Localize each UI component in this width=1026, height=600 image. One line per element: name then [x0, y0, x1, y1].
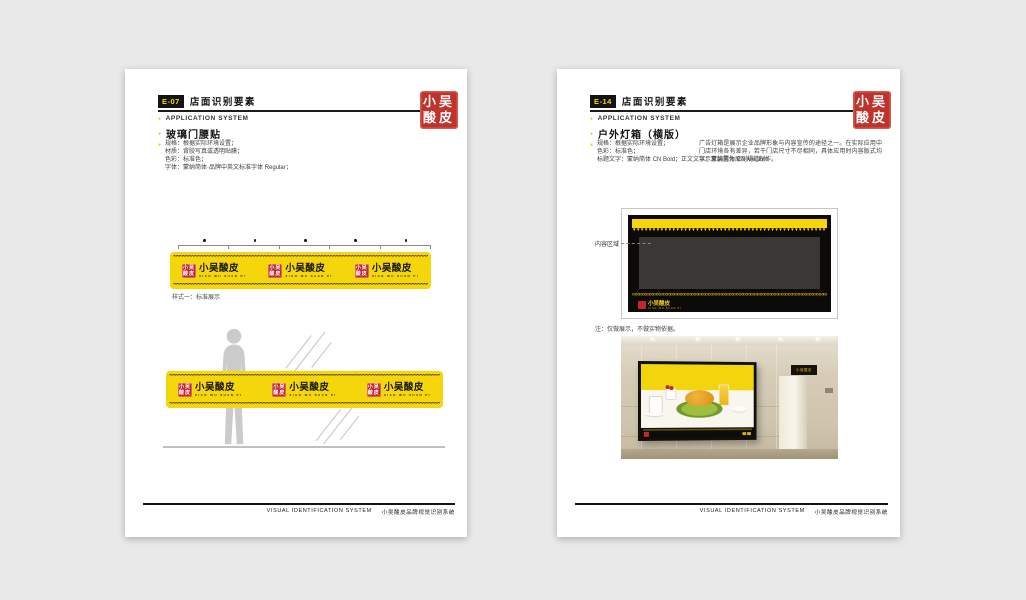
dessert-cup — [666, 388, 677, 400]
saucer — [646, 413, 664, 416]
footer-text-cn: 小吴酸皮品牌视觉识别系统 — [815, 508, 888, 516]
seal-row-bottom: 酸皮 — [182, 271, 196, 277]
banner-brand-text: 小吴酸皮 XIAO WU SUAN PI — [648, 301, 682, 310]
bullet-icon: ● — [590, 116, 594, 122]
spec-line: 规格：根据实际环境设置； — [165, 140, 292, 148]
ceiling-light-icon — [696, 338, 699, 340]
brand-name: 小吴酸皮 — [384, 383, 431, 393]
banner-brand-text: 小吴酸皮 XIAO WU SUAN PI — [195, 383, 242, 397]
ruler-tick — [329, 245, 330, 249]
header-rule — [158, 110, 435, 112]
footer-text-cn: 小吴酸皮品牌视觉识别系统 — [382, 508, 455, 516]
brand-name: 小吴酸皮 — [289, 383, 336, 393]
banner-seal-icon: 小吴 酸皮 — [268, 264, 282, 278]
ruler-tick — [430, 245, 431, 249]
brand-name-en: XIAO WU SUAN PI — [372, 274, 419, 278]
section-label-en: ● APPLICATION SYSTEM — [158, 115, 249, 122]
ceiling-light-icon — [651, 338, 654, 340]
banner-seal-icon: 小吴 酸皮 — [182, 264, 196, 278]
section-en-text: APPLICATION SYSTEM — [166, 115, 249, 122]
ad-mark — [742, 432, 746, 435]
ceiling-light-icon — [736, 338, 739, 340]
spec-line: 材质：背胶写真或透明贴膜； — [165, 148, 292, 156]
brand-name-en: XIAO WU SUAN PI — [285, 274, 332, 278]
brand-name: 小吴酸皮 — [195, 383, 242, 393]
ruler-dot — [304, 239, 307, 242]
seal-row-bottom: 酸皮 — [420, 110, 458, 126]
glass-door-sticker-banner: ~~~~~~~~~~~~~~~~~~~~~~~~~~~~~~~~~~~~~~~~… — [166, 371, 443, 408]
bullet-icon: ● — [590, 141, 593, 164]
lightbox-diagram: ▼▼▼▼▼▼▼▼▼▼▼▼▼▼▼▼▼▼▼▼▼▼▼▼▼▼▼▼▼▼▼▼▼▼▼▼▼▼▼▼… — [621, 208, 838, 319]
bullet-icon: ● — [158, 131, 162, 137]
seal-row-bottom: 酸皮 — [853, 110, 891, 126]
brand-name: 小吴酸皮 — [285, 264, 332, 274]
lightbox-yellow-band — [632, 219, 827, 228]
brand-name: 小吴酸皮 — [372, 264, 419, 274]
banner-logo: 小吴 酸皮 小吴酸皮 XIAO WU SUAN PI — [182, 264, 246, 278]
ruler-dot — [254, 239, 257, 242]
seal-row-bottom: 酸皮 — [355, 271, 369, 277]
footer-text: VISUAL IDENTIFICATION SYSTEM 小吴酸皮品牌视觉识别系… — [267, 508, 455, 516]
banner-brand-text: 小吴酸皮 XIAO WU SUAN PI — [285, 264, 332, 278]
brand-name-en: XIAO WU SUAN PI — [648, 307, 682, 310]
photo-doorway — [779, 376, 807, 450]
ground-line — [163, 446, 445, 448]
ruler-line — [178, 245, 430, 246]
footer-rule — [575, 503, 888, 505]
ceiling-light-icon — [779, 338, 782, 340]
banner-logo: 小吴 酸皮 小吴酸皮 XIAO WU SUAN PI — [367, 383, 431, 397]
bullet-icon: ● — [158, 116, 162, 122]
banner-seal-icon — [638, 301, 646, 309]
seal-row-top: 小吴 — [853, 94, 891, 110]
page-header: E-07 店面识别要素 — [158, 94, 256, 108]
chain-border-icon: ∞∞∞∞∞∞∞∞∞∞∞∞∞∞∞∞∞∞∞∞∞∞∞∞∞∞∞∞∞∞∞∞∞∞∞∞∞∞∞∞… — [632, 293, 827, 299]
ruler-dot — [203, 239, 206, 242]
item-title-text: 户外灯箱（横版） — [598, 126, 686, 141]
milk-cup — [649, 396, 663, 414]
ruler-tick — [380, 245, 381, 249]
header-rule — [590, 110, 867, 112]
wall-tile-line — [776, 345, 777, 449]
description-paragraph: 广告灯箱是展示企业品牌形象与内容宣传的途径之一。在实际应用中门店环境各有差异，若… — [699, 140, 882, 165]
spec-line: 字体：蒙纳简体·品牌中英文标准字体 Regular； — [165, 164, 292, 172]
banner-seal-icon — [644, 431, 649, 436]
item-title: ● 玻璃门腰贴 — [158, 126, 221, 141]
banner-logo: 小吴 酸皮 小吴酸皮 XIAO WU SUAN PI — [268, 264, 332, 278]
bullet-icon: ● — [158, 141, 161, 172]
banner-logo: 小吴 酸皮 小吴酸皮 XIAO WU SUAN PI — [355, 264, 419, 278]
banner-brand-text: 小吴酸皮 XIAO WU SUAN PI — [289, 383, 336, 397]
item-title: ● 户外灯箱（横版） — [590, 126, 686, 141]
lightbox-frame: ▼▼▼▼▼▼▼▼▼▼▼▼▼▼▼▼▼▼▼▼▼▼▼▼▼▼▼▼▼▼▼▼▼▼▼▼▼▼▼▼… — [628, 215, 831, 312]
brand-name-en: XIAO WU SUAN PI — [384, 393, 431, 397]
page-code-badge: E-14 — [590, 95, 616, 108]
footer-text: VISUAL IDENTIFICATION SYSTEM 小吴酸皮品牌视觉识别系… — [700, 508, 888, 516]
strawberry-icon — [666, 385, 669, 388]
ruler-dot — [405, 239, 408, 242]
dimension-ruler — [178, 238, 430, 250]
item-title-text: 玻璃门腰贴 — [166, 126, 221, 141]
brand-seal-icon: 小吴 酸皮 — [853, 91, 891, 129]
page-code-badge: E-07 — [158, 95, 184, 108]
leader-line — [621, 243, 651, 244]
chain-border-icon: ∞∞∞∞∞∞∞∞∞∞∞∞∞∞∞∞∞∞∞∞∞∞∞∞∞∞∞∞∞∞∞∞∞∞∞∞∞∞∞∞… — [643, 428, 752, 433]
banner-seal-icon: 小吴 酸皮 — [272, 383, 286, 397]
ruler-tick — [279, 245, 280, 249]
note-caption: 注：仅做展示，不做实物依据。 — [595, 324, 679, 333]
scallop-edge-icon: ▼▼▼▼▼▼▼▼▼▼▼▼▼▼▼▼▼▼▼▼▼▼▼▼▼▼▼▼▼▼▼▼▼▼▼▼▼▼▼▼… — [632, 228, 827, 232]
ruler-dot — [354, 239, 357, 242]
banner-seal-icon: 小吴 酸皮 — [355, 264, 369, 278]
style-caption: 样式一：标准展示 — [172, 292, 220, 301]
seal-row-bottom: 酸皮 — [367, 390, 381, 396]
brand-name: 小吴酸皮 — [199, 264, 246, 274]
brand-seal-icon: 小吴 酸皮 — [420, 91, 458, 129]
wall-sign — [825, 388, 833, 393]
footer-text-en: VISUAL IDENTIFICATION SYSTEM — [700, 508, 805, 516]
banner-logo: 小吴 酸皮 小吴酸皮 XIAO WU SUAN PI — [178, 383, 242, 397]
ruler-tick — [178, 245, 179, 249]
seal-row-bottom: 酸皮 — [268, 271, 282, 277]
banner-logo-row: 小吴 酸皮 小吴酸皮 XIAO WU SUAN PI 小吴 酸皮 小吴酸皮 — [182, 260, 419, 281]
brand-name-en: XIAO WU SUAN PI — [199, 274, 246, 278]
side-dish — [732, 406, 747, 412]
wave-border-icon: ~~~~~~~~~~~~~~~~~~~~~~~~~~~~~~~~~~~~~~~~… — [169, 373, 440, 378]
banner-logo-row: 小吴 酸皮 小吴酸皮 XIAO WU SUAN PI 小吴 酸皮 小吴酸皮 — [178, 379, 431, 400]
page-e07: E-07 店面识别要素 小吴 酸皮 ● APPLICATION SYSTEM ●… — [125, 69, 467, 537]
wave-border-icon: ~~~~~~~~~~~~~~~~~~~~~~~~~~~~~~~~~~~~~~~~… — [173, 282, 428, 287]
spec-line: 色彩：标准色； — [165, 156, 292, 164]
brand-name-en: XIAO WU SUAN PI — [195, 393, 242, 397]
page-title: 店面识别要素 — [190, 94, 256, 108]
banner-logo: 小吴 酸皮 小吴酸皮 XIAO WU SUAN PI — [272, 383, 336, 397]
page-title: 店面识别要素 — [622, 94, 688, 108]
banner-brand-text: 小吴酸皮 XIAO WU SUAN PI — [372, 264, 419, 278]
banner-brand-text: 小吴酸皮 XIAO WU SUAN PI — [199, 264, 246, 278]
spec-list: ● 规格：根据实际环境设置； 材质：背胶写真或透明贴膜； 色彩：标准色； 字体：… — [158, 140, 292, 172]
ruler-tick — [228, 245, 229, 249]
brand-name-en: XIAO WU SUAN PI — [289, 393, 336, 397]
banner-brand-text: 小吴酸皮 XIAO WU SUAN PI — [384, 383, 431, 397]
content-area-label-text: 内容区域 — [595, 239, 619, 248]
content-area-label: 内容区域 — [595, 239, 651, 248]
ad-corner-marks — [742, 432, 750, 435]
section-en-text: APPLICATION SYSTEM — [598, 115, 681, 122]
glass-door-sticker-banner: ~~~~~~~~~~~~~~~~~~~~~~~~~~~~~~~~~~~~~~~~… — [170, 252, 431, 289]
page-e14: E-14 店面识别要素 小吴 酸皮 ● APPLICATION SYSTEM ●… — [557, 69, 900, 537]
seal-row-bottom: 酸皮 — [272, 390, 286, 396]
lightbox-content-panel — [639, 237, 820, 289]
ad-mark — [747, 432, 751, 435]
spec-lines: 规格：根据实际环境设置； 材质：背胶写真或透明贴膜； 色彩：标准色； 字体：蒙纳… — [165, 140, 292, 172]
photo-floor — [621, 449, 838, 459]
door-sign: 小吴酸皮 — [791, 365, 817, 375]
ad-bottom-strip: ∞∞∞∞∞∞∞∞∞∞∞∞∞∞∞∞∞∞∞∞∞∞∞∞∞∞∞∞∞∞∞∞∞∞∞∞∞∞∞∞… — [641, 427, 754, 438]
wave-border-icon: ~~~~~~~~~~~~~~~~~~~~~~~~~~~~~~~~~~~~~~~~… — [173, 254, 428, 259]
footer-rule — [143, 503, 455, 505]
page-header: E-14 店面识别要素 — [590, 94, 688, 108]
fried-food — [685, 390, 714, 406]
photo-lightbox: ∞∞∞∞∞∞∞∞∞∞∞∞∞∞∞∞∞∞∞∞∞∞∞∞∞∞∞∞∞∞∞∞∞∞∞∞∞∞∞∞… — [638, 361, 757, 441]
ad-yellow-band — [641, 364, 754, 390]
drink-glass — [719, 384, 729, 406]
environment-photo: 小吴酸皮 ∞∞∞∞∞∞∞∞∞∞∞∞∞∞∞∞∞∞∞∞∞∞∞∞∞∞∞∞∞∞∞ — [621, 336, 838, 459]
section-label-en: ● APPLICATION SYSTEM — [590, 115, 681, 122]
desktop-background: E-07 店面识别要素 小吴 酸皮 ● APPLICATION SYSTEM ●… — [0, 0, 1026, 600]
footer-text-en: VISUAL IDENTIFICATION SYSTEM — [267, 508, 372, 516]
seal-row-top: 小吴 — [420, 94, 458, 110]
bullet-icon: ● — [590, 131, 594, 137]
banner-seal-icon: 小吴 酸皮 — [178, 383, 192, 397]
strawberry-icon — [670, 386, 673, 389]
lightbox-logo: 小吴酸皮 XIAO WU SUAN PI — [638, 301, 682, 310]
ceiling-light-icon — [816, 338, 819, 340]
banner-seal-icon: 小吴 酸皮 — [367, 383, 381, 397]
seal-row-bottom: 酸皮 — [178, 390, 192, 396]
ad-artwork: ∞∞∞∞∞∞∞∞∞∞∞∞∞∞∞∞∞∞∞∞∞∞∞∞∞∞∞∞∞∞∞∞∞∞∞∞∞∞∞∞… — [641, 364, 754, 438]
wave-border-icon: ~~~~~~~~~~~~~~~~~~~~~~~~~~~~~~~~~~~~~~~~… — [169, 401, 440, 406]
